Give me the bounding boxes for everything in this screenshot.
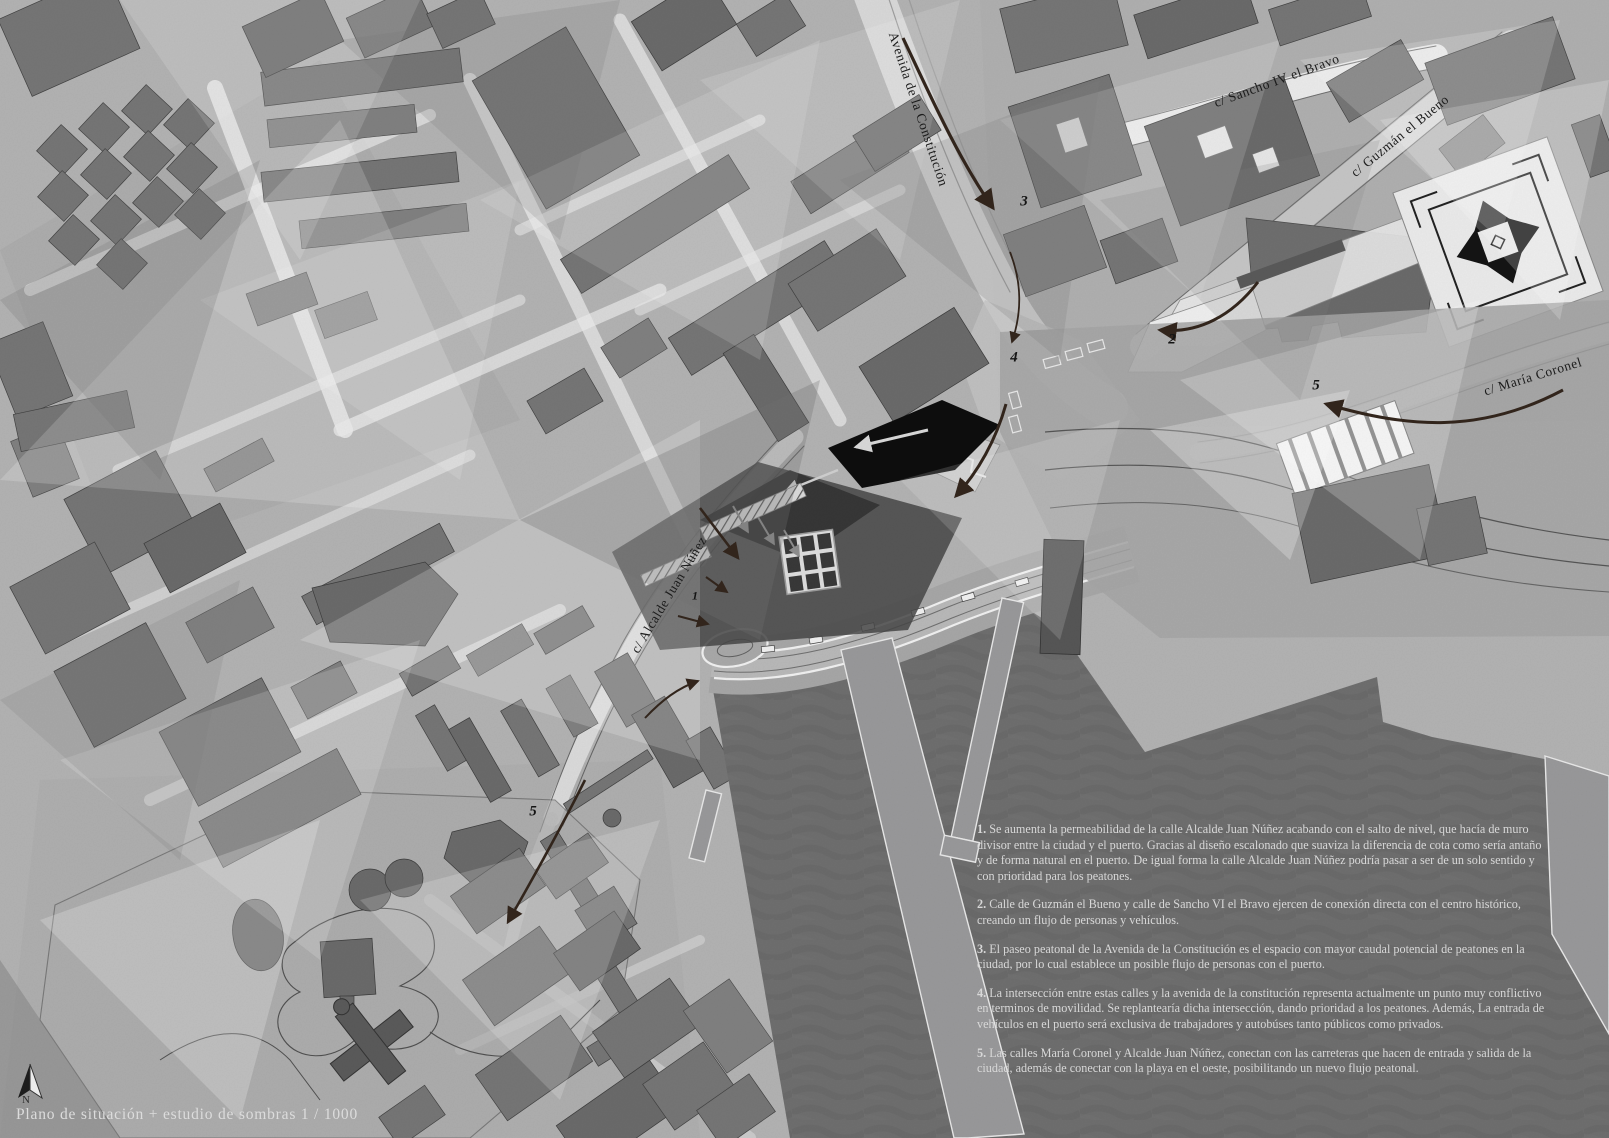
note-4-number: 4. — [977, 986, 986, 1000]
note-2-text: Calle de Guzmán el Bueno y calle de Sanc… — [977, 897, 1521, 927]
flow-marker-1: 1 — [692, 589, 698, 604]
flow-marker-4: 4 — [1010, 350, 1018, 367]
note-3: 3. El paseo peatonal de la Avenida de la… — [977, 942, 1547, 973]
flow-marker-5-park: 5 — [529, 804, 537, 821]
note-3-text: El paseo peatonal de la Avenida de la Co… — [977, 942, 1525, 972]
note-5-text: Las calles María Coronel y Alcalde Juan … — [977, 1046, 1531, 1076]
note-5-number: 5. — [977, 1046, 986, 1060]
note-2-number: 2. — [977, 897, 986, 911]
note-4: 4. La intersección entre estas calles y … — [977, 986, 1547, 1033]
note-1-text: Se aumenta la permeabilidad de la calle … — [977, 822, 1541, 883]
north-label: N — [22, 1094, 30, 1106]
note-5: 5. Las calles María Coronel y Alcalde Ju… — [977, 1046, 1547, 1077]
note-1-number: 1. — [977, 822, 986, 836]
note-3-number: 3. — [977, 942, 986, 956]
annotation-notes: 1. Se aumenta la permeabilidad de la cal… — [977, 822, 1547, 1090]
flow-marker-2: 2 — [1168, 332, 1176, 349]
site-plan: Avenida de la Constitución c/ Sancho IV … — [0, 0, 1609, 1138]
page-title: Plano de situación + estudio de sombras … — [16, 1106, 358, 1124]
note-1: 1. Se aumenta la permeabilidad de la cal… — [977, 822, 1547, 884]
note-4-text: La intersección entre estas calles y la … — [977, 986, 1544, 1031]
flow-marker-5-street: 5 — [1312, 378, 1320, 395]
flow-marker-3: 3 — [1020, 194, 1028, 211]
note-2: 2. Calle de Guzmán el Bueno y calle de S… — [977, 897, 1547, 928]
